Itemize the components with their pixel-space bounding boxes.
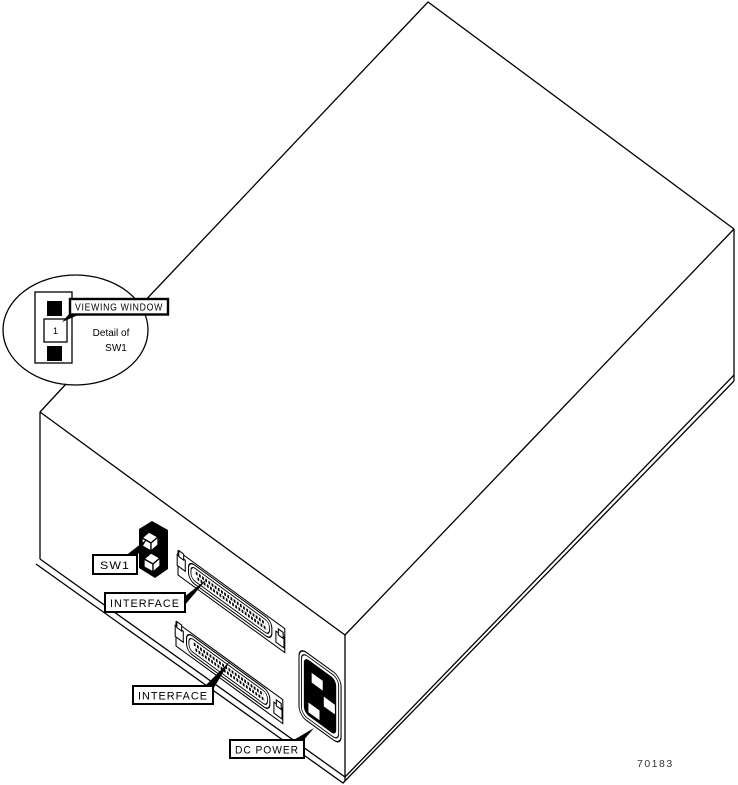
switch-position-value: 1 [53, 326, 58, 336]
switch-lower-button-detail [47, 346, 62, 361]
detail-caption-line2: SW1 [105, 343, 127, 354]
detail-caption-line1: Detail of [93, 328, 130, 339]
figure-number: 70183 [637, 758, 674, 770]
device-enclosure-outline [36, 2, 734, 783]
rear-panel-diagram: 1 Detail of SW1 VIEWING WINDOW [0, 0, 738, 785]
interface-bottom-label: INTERFACE [138, 691, 208, 703]
sw1-callout: SW1 [93, 539, 147, 574]
viewing-window-label: VIEWING WINDOW [75, 303, 163, 314]
switch-upper-button-detail [47, 301, 62, 316]
sw1-switch [139, 521, 168, 578]
interface-top-label: INTERFACE [110, 598, 180, 610]
sw1-label: SW1 [100, 560, 130, 572]
dc-power-inlet [299, 647, 341, 746]
sw1-detail-balloon: 1 Detail of SW1 VIEWING WINDOW [3, 275, 168, 385]
dc-power-label: DC POWER [235, 745, 299, 757]
technical-illustration: 1 Detail of SW1 VIEWING WINDOW [0, 0, 738, 785]
